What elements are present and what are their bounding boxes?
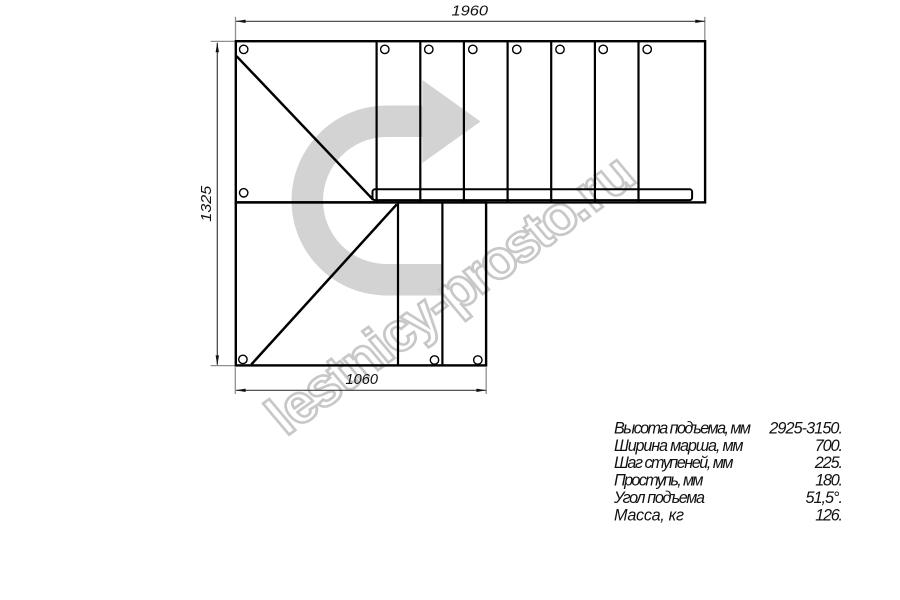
svg-text:51,5°.: 51,5°. [806, 489, 844, 507]
svg-text:700.: 700. [815, 437, 843, 455]
svg-text:Высота подъема, мм: Высота подъема, мм [614, 419, 751, 437]
svg-text:Ширина марша, мм: Ширина марша, мм [614, 437, 744, 455]
svg-text:Проступь, мм: Проступь, мм [614, 472, 704, 490]
svg-text:126.: 126. [815, 506, 843, 524]
svg-text:1325: 1325 [199, 185, 215, 222]
svg-text:Угол подъема: Угол подъема [613, 489, 705, 507]
svg-text:225.: 225. [814, 454, 843, 472]
svg-text:1960: 1960 [452, 3, 489, 19]
svg-text:Масса, кг: Масса, кг [614, 506, 684, 524]
svg-text:Шаг ступеней, мм: Шаг ступеней, мм [614, 454, 734, 472]
svg-text:2925-3150.: 2925-3150. [768, 419, 843, 437]
svg-text:180.: 180. [815, 472, 843, 490]
svg-text:1060: 1060 [346, 372, 379, 388]
